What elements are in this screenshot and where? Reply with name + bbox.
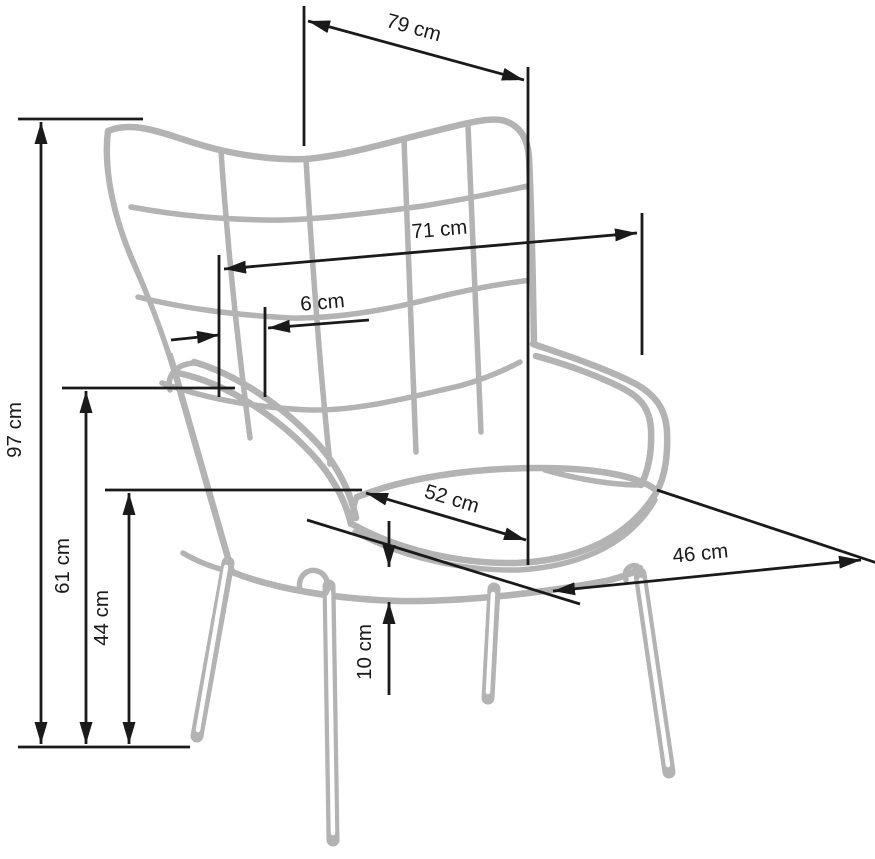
armchair-dimension-diagram: 97 cm 61 cm 44 cm 79 cm 71 cm 6 cm 52 c: [0, 0, 875, 859]
dimension-label-cushion-thickness: 10 cm: [353, 624, 376, 680]
dimension-label-height-total: 97 cm: [3, 402, 26, 458]
dimension-label-seat-width: 46 cm: [671, 539, 729, 567]
dimension-height-total: 97 cm: [3, 119, 143, 744]
chair-leg-rear-left-gap: [198, 567, 226, 730]
dimension-label-height-armrest: 61 cm: [51, 538, 74, 594]
arrow-6-left: [171, 335, 219, 340]
diagram-canvas: 97 cm 61 cm 44 cm 79 cm 71 cm 6 cm 52 c: [0, 0, 875, 859]
chair-leg-front-right-gap: [641, 580, 668, 765]
dimension-label-height-seat: 44 cm: [90, 590, 113, 646]
dimension-label-width-back: 71 cm: [411, 216, 469, 244]
dimension-label-tuft-offset: 6 cm: [299, 289, 345, 316]
arrow-46: [553, 560, 861, 591]
chair-seat-frame: [232, 568, 640, 601]
chair-back-left-edge: [107, 131, 232, 572]
chair-illustration: [107, 120, 669, 840]
chair-tuft-seam-v4: [468, 126, 481, 432]
chair-tuft-seam-v3: [404, 139, 416, 452]
dimension-height-seat: 44 cm: [90, 490, 362, 744]
chair-back-left-edge-highlight: [111, 138, 172, 352]
dimension-label-depth-total: 79 cm: [384, 9, 444, 46]
